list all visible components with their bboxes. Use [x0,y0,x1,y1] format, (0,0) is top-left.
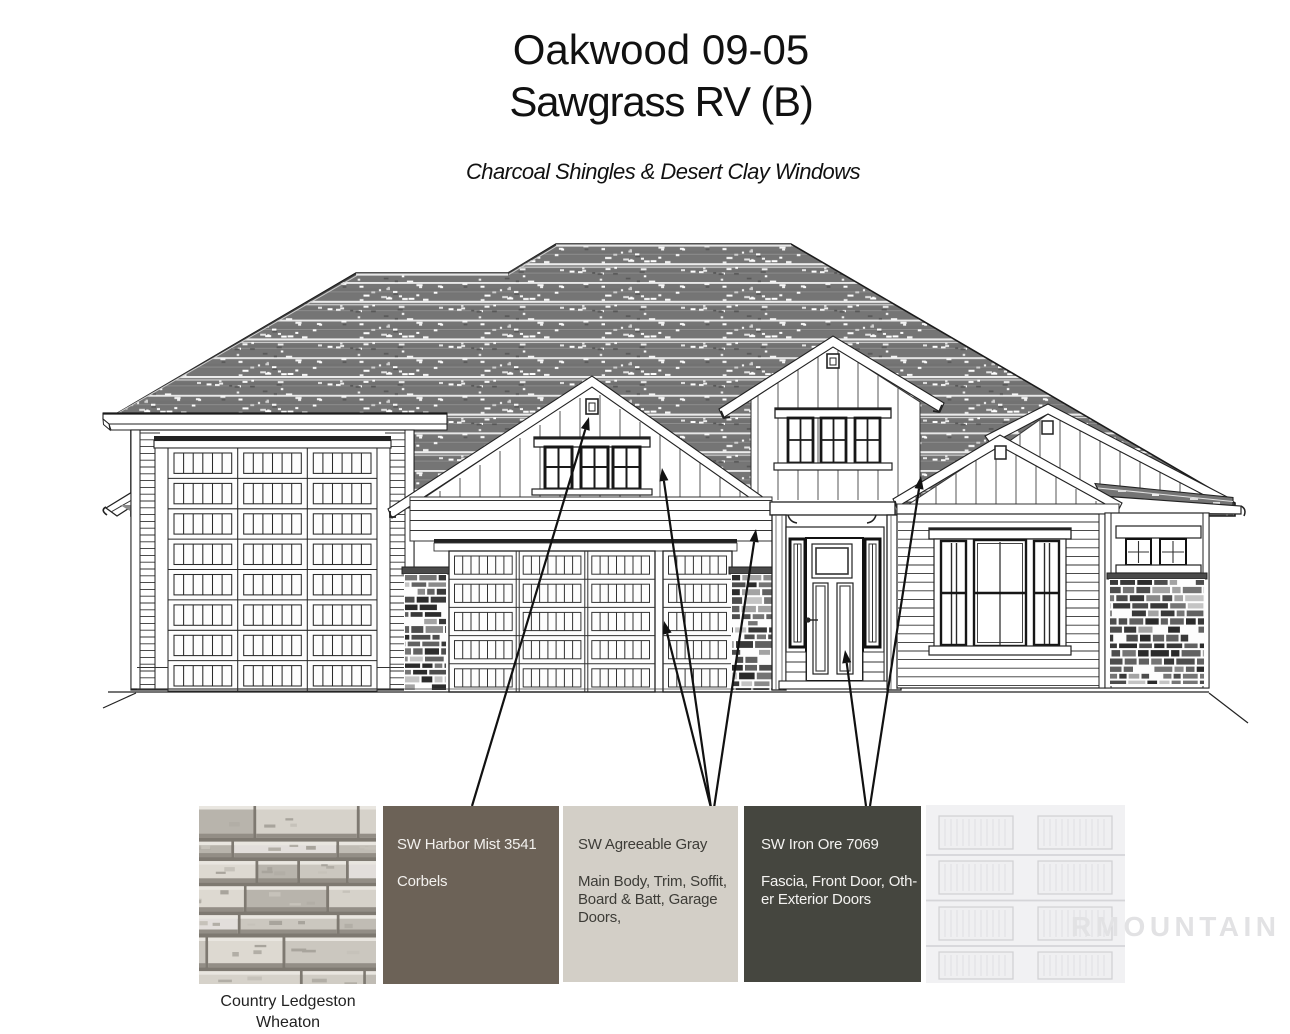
svg-text:er Exterior Doors: er Exterior Doors [761,891,871,908]
svg-text:SW Agreeable Gray: SW Agreeable Gray [578,836,708,853]
svg-text:Sawgrass RV (B): Sawgrass RV (B) [509,78,812,125]
svg-text:Oakwood 09-05: Oakwood 09-05 [513,26,810,73]
svg-text:RMOUNTAIN: RMOUNTAIN [1071,911,1281,942]
svg-text:Main Body, Trim, Soffit,: Main Body, Trim, Soffit, [578,873,727,890]
svg-text:Corbels: Corbels [397,873,447,890]
svg-text:Fascia, Front Door, Oth-: Fascia, Front Door, Oth- [761,873,917,890]
svg-text:Charcoal Shingles & Desert Cla: Charcoal Shingles & Desert Clay Windows [466,159,861,184]
svg-text:Country Ledgeston: Country Ledgeston [220,993,355,1010]
svg-text:Wheaton: Wheaton [256,1014,320,1031]
svg-text:Doors,: Doors, [578,909,621,926]
svg-text:SW Harbor Mist 3541: SW Harbor Mist 3541 [397,836,537,853]
svg-text:SW Iron Ore 7069: SW Iron Ore 7069 [761,836,879,853]
svg-text:Board & Batt, Garage: Board & Batt, Garage [578,891,717,908]
